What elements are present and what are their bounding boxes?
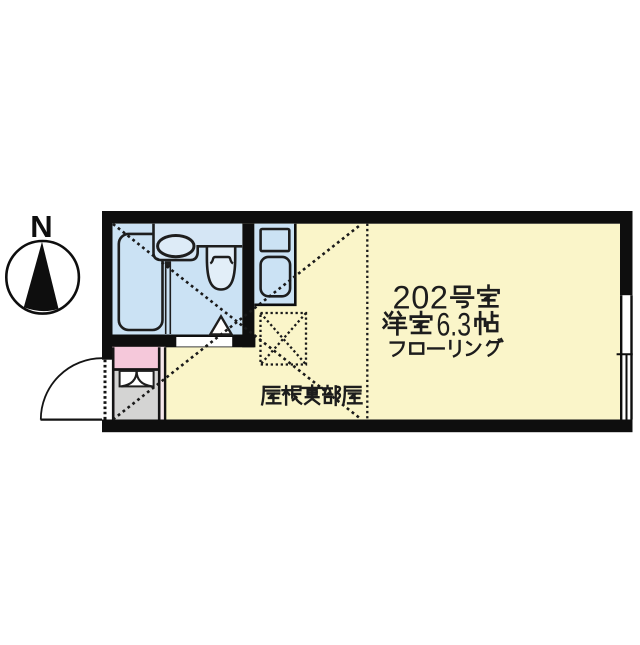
- svg-text:N: N: [30, 209, 52, 244]
- svg-text:6.3: 6.3: [437, 307, 472, 343]
